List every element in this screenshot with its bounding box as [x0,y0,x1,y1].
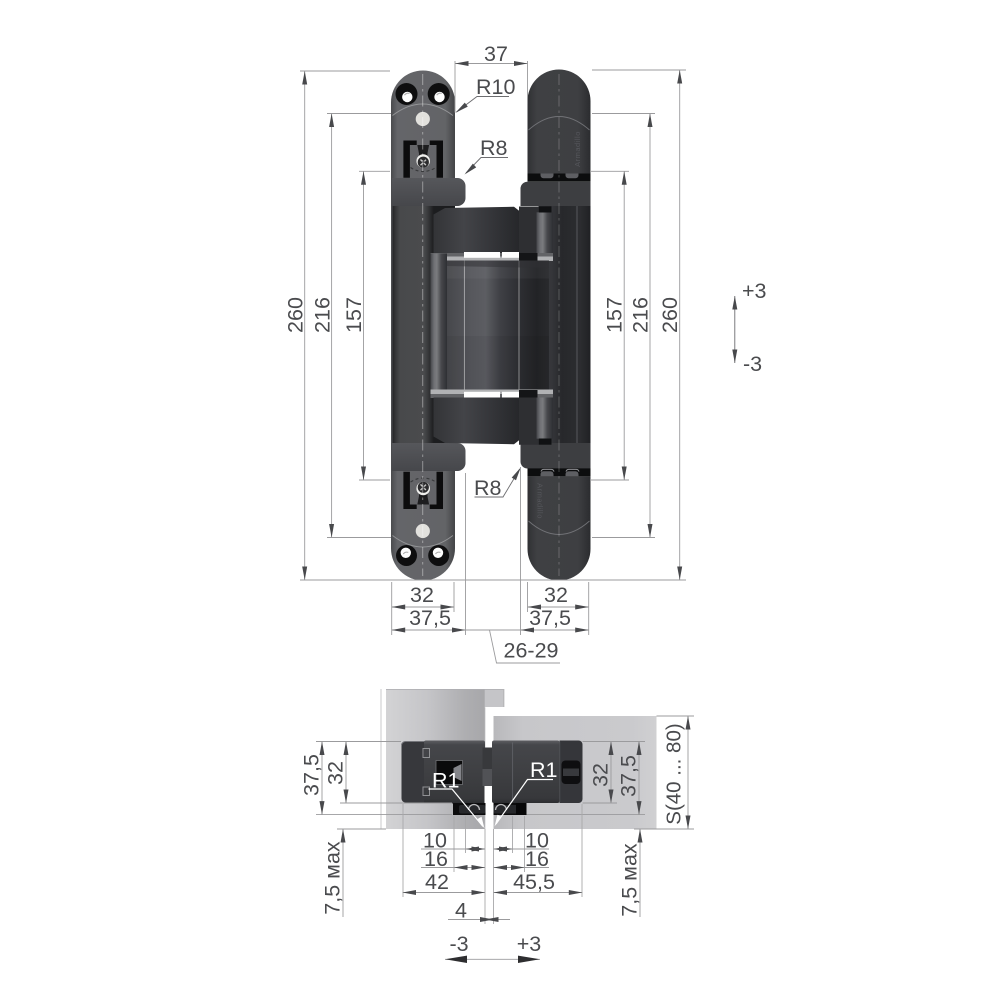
svg-text:260: 260 [658,297,682,333]
svg-text:16: 16 [424,847,448,871]
svg-text:32: 32 [544,583,568,607]
svg-text:R8: R8 [474,476,502,500]
svg-text:260: 260 [284,297,308,333]
svg-text:42: 42 [425,870,449,894]
svg-text:4: 4 [455,899,467,923]
svg-text:R1: R1 [432,769,459,793]
svg-text:R8: R8 [480,136,508,160]
svg-text:26-29: 26-29 [504,639,559,663]
svg-text:16: 16 [525,847,549,871]
svg-text:-3: -3 [449,932,468,956]
svg-text:157: 157 [342,297,366,333]
svg-text:32: 32 [410,583,434,607]
svg-text:32: 32 [589,763,613,787]
svg-text:37,5: 37,5 [617,755,641,797]
svg-text:Armadillo: Armadillo [536,483,545,519]
svg-text:216: 216 [629,297,653,333]
svg-text:32: 32 [324,761,348,785]
svg-text:37,5: 37,5 [409,606,451,630]
svg-text:216: 216 [311,297,335,333]
svg-text:7,5 мах: 7,5 мах [321,841,345,915]
svg-text:7,5 мах: 7,5 мах [618,843,642,917]
svg-text:37,5: 37,5 [529,606,571,630]
svg-text:R10: R10 [476,75,515,99]
svg-text:-3: -3 [743,352,762,376]
svg-text:Armadillo: Armadillo [573,131,582,167]
svg-text:+3: +3 [742,279,767,303]
svg-text:37,5: 37,5 [300,754,324,796]
svg-text:45,5: 45,5 [513,870,555,894]
svg-text:157: 157 [603,297,627,333]
svg-text:37: 37 [484,42,508,66]
svg-text:S(40 ... 80): S(40 ... 80) [663,723,686,824]
svg-text:R1: R1 [530,758,557,782]
svg-text:+3: +3 [517,932,542,956]
